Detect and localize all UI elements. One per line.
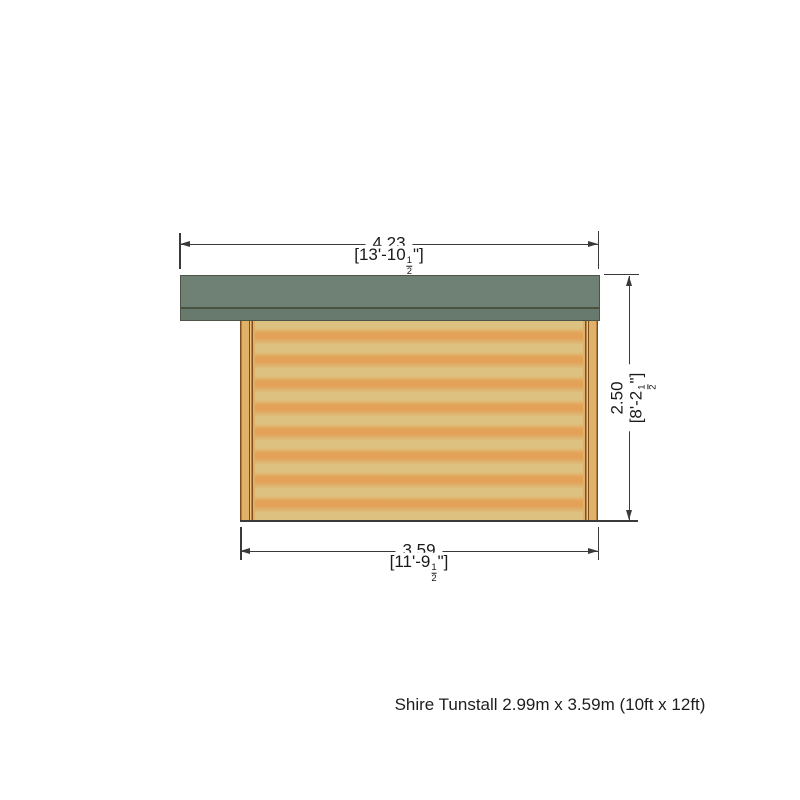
arrowhead-right-icon [588, 548, 598, 554]
arrowhead-up-icon [626, 276, 632, 286]
height-dim-label: 2.50 [8'-212"] [606, 365, 659, 432]
product-caption: Shire Tunstall 2.99m x 3.59m (10ft x 12f… [395, 695, 706, 715]
height-dim-metric-value: 2.50 [608, 373, 627, 424]
height-dim-imperial-prefix: [8'-2 [626, 391, 645, 424]
base-dim-fraction: 12 [431, 563, 436, 584]
arrowhead-down-icon [626, 510, 632, 520]
top-dim-extension-line-right [598, 231, 600, 269]
height-dim-extension-line-top [604, 274, 639, 276]
top-dim-fraction: 12 [407, 256, 412, 277]
base-dim-imperial-prefix: [11'-9 [390, 552, 431, 571]
arrowhead-left-icon [240, 548, 250, 554]
fraction-denominator: 2 [648, 384, 658, 389]
corner-post-right [583, 321, 598, 521]
base-dim-extension-line-right [598, 527, 600, 560]
top-dim-extension-line-left [179, 233, 181, 269]
cabin-roof [180, 275, 600, 321]
drawing-canvas: 4.23 [13'-1012"] 2.50 [8'-212"] 3.59 [11… [0, 0, 800, 800]
base-dim-imperial-label: [11'-912"] [387, 553, 452, 584]
ground-line [240, 520, 638, 522]
arrowhead-left-icon [180, 241, 190, 247]
height-dim-imperial-label: [8'-212"] [627, 373, 658, 424]
fraction-denominator: 2 [431, 574, 436, 584]
top-dim-imperial-label: [13'-1012"] [351, 246, 427, 277]
base-dim-imperial-suffix: "] [438, 552, 449, 571]
corner-post-left [240, 321, 255, 521]
base-dim-extension-line-left [240, 527, 242, 560]
arrowhead-right-icon [588, 241, 598, 247]
top-dim-imperial-suffix: "] [413, 245, 424, 264]
height-dim-imperial-suffix: "] [626, 373, 645, 384]
top-dim-imperial-prefix: [13'-10 [354, 245, 405, 264]
height-dim-fraction: 12 [637, 384, 658, 389]
cabin-wall [240, 321, 598, 521]
